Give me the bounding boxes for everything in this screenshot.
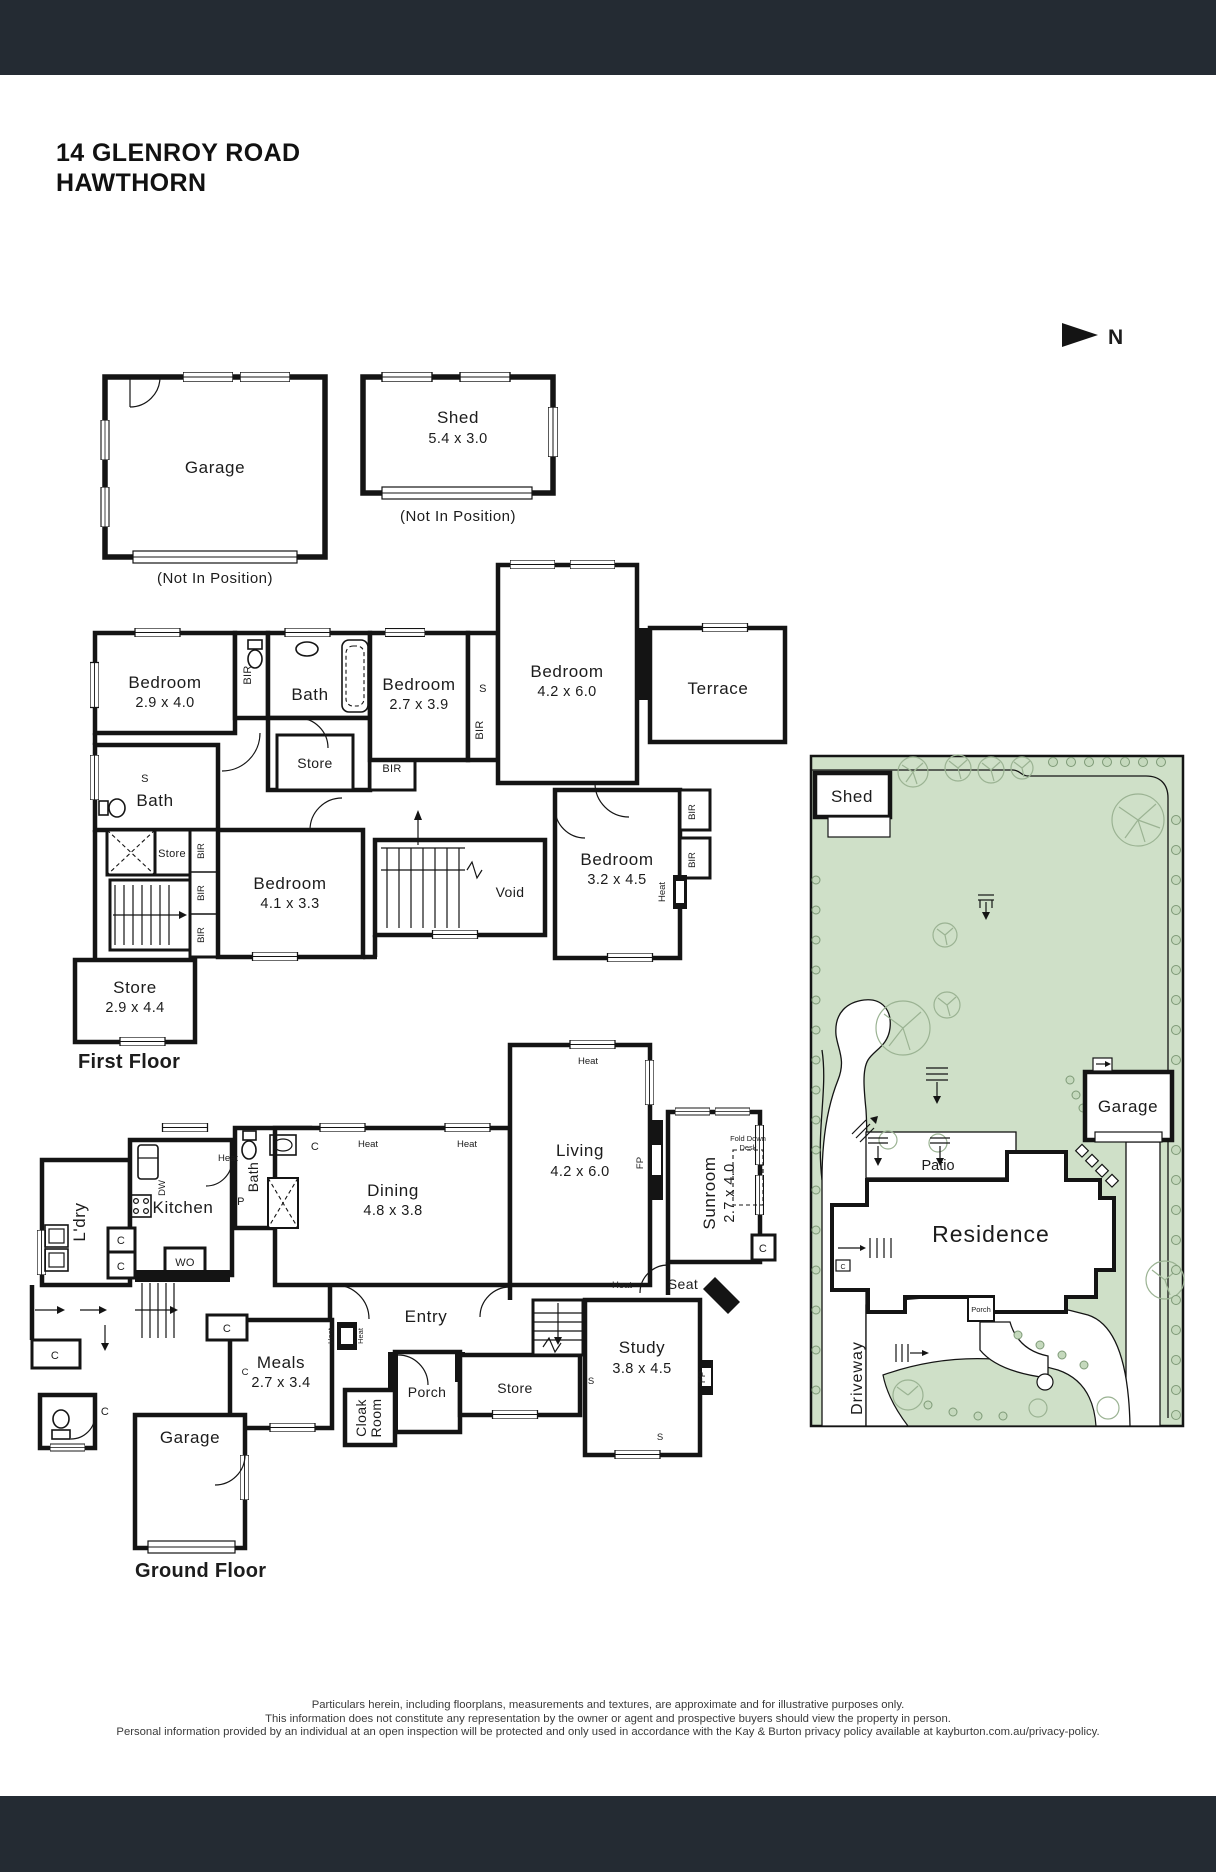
site-shed-label: Shed <box>831 787 873 806</box>
page-title-line2: HAWTHORN <box>56 168 300 198</box>
ff-storelower-dims: 2.9 x 4.4 <box>105 1000 164 1016</box>
site-driveway-label: Driveway <box>849 1341 866 1415</box>
outbuilding-shed: Shed 5.4 x 3.0 (Not In Position) <box>363 372 558 525</box>
ff-bed2-name: Bedroom <box>382 675 455 694</box>
gf-study-dims: 3.8 x 4.5 <box>612 1361 671 1377</box>
top-band <box>0 0 1216 75</box>
page-title: 14 GLENROY ROAD HAWTHORN <box>56 138 300 198</box>
gf-cloak-1: Cloak <box>353 1399 369 1437</box>
ff-bed3-dims: 4.2 x 6.0 <box>537 684 596 700</box>
north-label: N <box>1108 326 1123 349</box>
disclaimer-line2: This information does not constitute any… <box>0 1713 1216 1727</box>
gf-c-6: C <box>242 1367 249 1378</box>
first-floor-plan: Bedroom 2.9 x 4.0 BIR Bath Store BIR Bed… <box>55 540 795 1080</box>
gf-heat-1: Heat <box>358 1139 378 1150</box>
gf-c-3: C <box>117 1261 125 1273</box>
ff-bed5-name: Bedroom <box>580 850 653 869</box>
gf-c-1: C <box>311 1141 319 1153</box>
north-arrow: N <box>1048 313 1208 361</box>
ff-bathtop-name: Bath <box>291 685 328 704</box>
gf-garage-name: Garage <box>160 1428 220 1447</box>
gf-living-name: Living <box>556 1141 604 1160</box>
gf-s-1: S <box>588 1376 594 1387</box>
gf-seat-name: Seat <box>668 1276 698 1292</box>
gf-entry-name: Entry <box>405 1307 448 1326</box>
bottom-band <box>0 1796 1216 1872</box>
ff-storetop-name: Store <box>297 755 332 771</box>
gf-ldry-name: L'dry <box>70 1202 89 1241</box>
gf-p: P <box>237 1196 245 1208</box>
ff-s-1: S <box>479 683 487 695</box>
ff-bir-2: BIR <box>382 763 401 775</box>
gf-fp-2: FP <box>697 1371 708 1383</box>
site-porch-label: Porch <box>971 1305 991 1314</box>
outbuilding-shed-note: (Not In Position) <box>400 508 516 525</box>
ff-bir-7: BIR <box>687 804 698 820</box>
gf-c-4: C <box>759 1243 767 1255</box>
outbuilding-garage-label: Garage <box>185 458 245 477</box>
gf-sunroom-name: Sunroom <box>700 1156 719 1229</box>
ff-bir-3: BIR <box>474 720 486 739</box>
ff-bir-5: BIR <box>196 885 207 901</box>
ff-bathleft-name: Bath <box>136 791 173 810</box>
ff-storemid-name: Store <box>158 848 186 860</box>
gf-c-7: C <box>51 1350 59 1362</box>
ff-bir-4: BIR <box>196 843 207 859</box>
site-residence-label: Residence <box>932 1221 1050 1247</box>
gf-fp-1: FP <box>635 1157 646 1169</box>
gf-heat-3: Heat <box>578 1056 598 1067</box>
ff-bed1-dims: 2.9 x 4.0 <box>135 695 194 711</box>
gf-s-2: S <box>657 1432 663 1443</box>
ff-s-2: S <box>141 773 149 785</box>
page-title-line1: 14 GLENROY ROAD <box>56 138 300 168</box>
gf-bath-name: Bath <box>245 1162 261 1192</box>
disclaimer-line3: Personal information provided by an indi… <box>0 1726 1216 1740</box>
gf-meals-dims: 2.7 x 3.4 <box>251 1375 310 1391</box>
gf-dw: DW <box>157 1180 168 1196</box>
ff-void-name: Void <box>496 884 525 900</box>
ff-bed2-dims: 2.7 x 3.9 <box>389 697 448 713</box>
gf-living-dims: 4.2 x 6.0 <box>550 1164 609 1180</box>
ff-terrace-name: Terrace <box>688 679 749 698</box>
outbuilding-shed-label: Shed <box>437 408 479 427</box>
ff-storelower-name: Store <box>113 978 157 997</box>
gf-dining-name: Dining <box>367 1181 419 1200</box>
ground-floor-plan: L'dry Kitchen DW Bath P Heat C C C WO Di… <box>15 1025 805 1595</box>
ground-floor-walls <box>32 1045 775 1548</box>
gf-study-name: Study <box>619 1338 665 1357</box>
gf-meals-name: Meals <box>257 1353 305 1372</box>
ff-bed4-dims: 4.1 x 3.3 <box>260 896 319 912</box>
gf-c-8: C <box>101 1406 109 1418</box>
disclaimer: Particulars herein, including floorplans… <box>0 1699 1216 1740</box>
gf-sunroom-dims: 2.7 x 4.0 <box>722 1163 738 1222</box>
ff-bed1-name: Bedroom <box>128 673 201 692</box>
site-c-label: C <box>840 1264 845 1271</box>
gf-store-name: Store <box>497 1380 532 1396</box>
gf-wo: WO <box>175 1257 195 1269</box>
gf-dining-dims: 4.8 x 3.8 <box>363 1203 422 1219</box>
gf-c-2: C <box>117 1235 125 1247</box>
ff-bir-6: BIR <box>196 927 207 943</box>
gf-kitchen-name: Kitchen <box>153 1198 214 1217</box>
gf-cloak-2: Room <box>368 1399 384 1438</box>
ff-bed5-dims: 3.2 x 4.5 <box>587 872 646 888</box>
ff-bed3-name: Bedroom <box>530 662 603 681</box>
ff-bed4-name: Bedroom <box>253 874 326 893</box>
gf-c-5: C <box>223 1323 231 1335</box>
gf-heat-4: Heat <box>612 1280 632 1291</box>
gf-heat-6: Heat <box>356 1327 365 1344</box>
outbuilding-shed-dims: 5.4 x 3.0 <box>428 431 487 447</box>
disclaimer-line1: Particulars herein, including floorplans… <box>0 1699 1216 1713</box>
ff-bir-8: BIR <box>687 852 698 868</box>
gf-heat-0: Heat <box>218 1153 238 1164</box>
gf-folddesk-2: Desk <box>739 1143 756 1152</box>
ff-heat-1: Heat <box>657 882 668 902</box>
ff-bir-1: BIR <box>242 665 254 684</box>
gf-heat-5: Heat <box>326 1327 335 1344</box>
ground-floor-title: Ground Floor <box>135 1560 266 1582</box>
gf-folddesk-1: Fold Down <box>730 1134 766 1143</box>
site-garage-label: Garage <box>1098 1097 1158 1116</box>
site-plan: Shed Garage Porch Residence Patio C <box>808 750 1188 1430</box>
north-arrow-icon <box>1062 323 1098 347</box>
gf-porch-name: Porch <box>408 1384 447 1400</box>
first-floor-walls <box>75 565 785 1042</box>
gf-heat-2: Heat <box>457 1139 477 1150</box>
